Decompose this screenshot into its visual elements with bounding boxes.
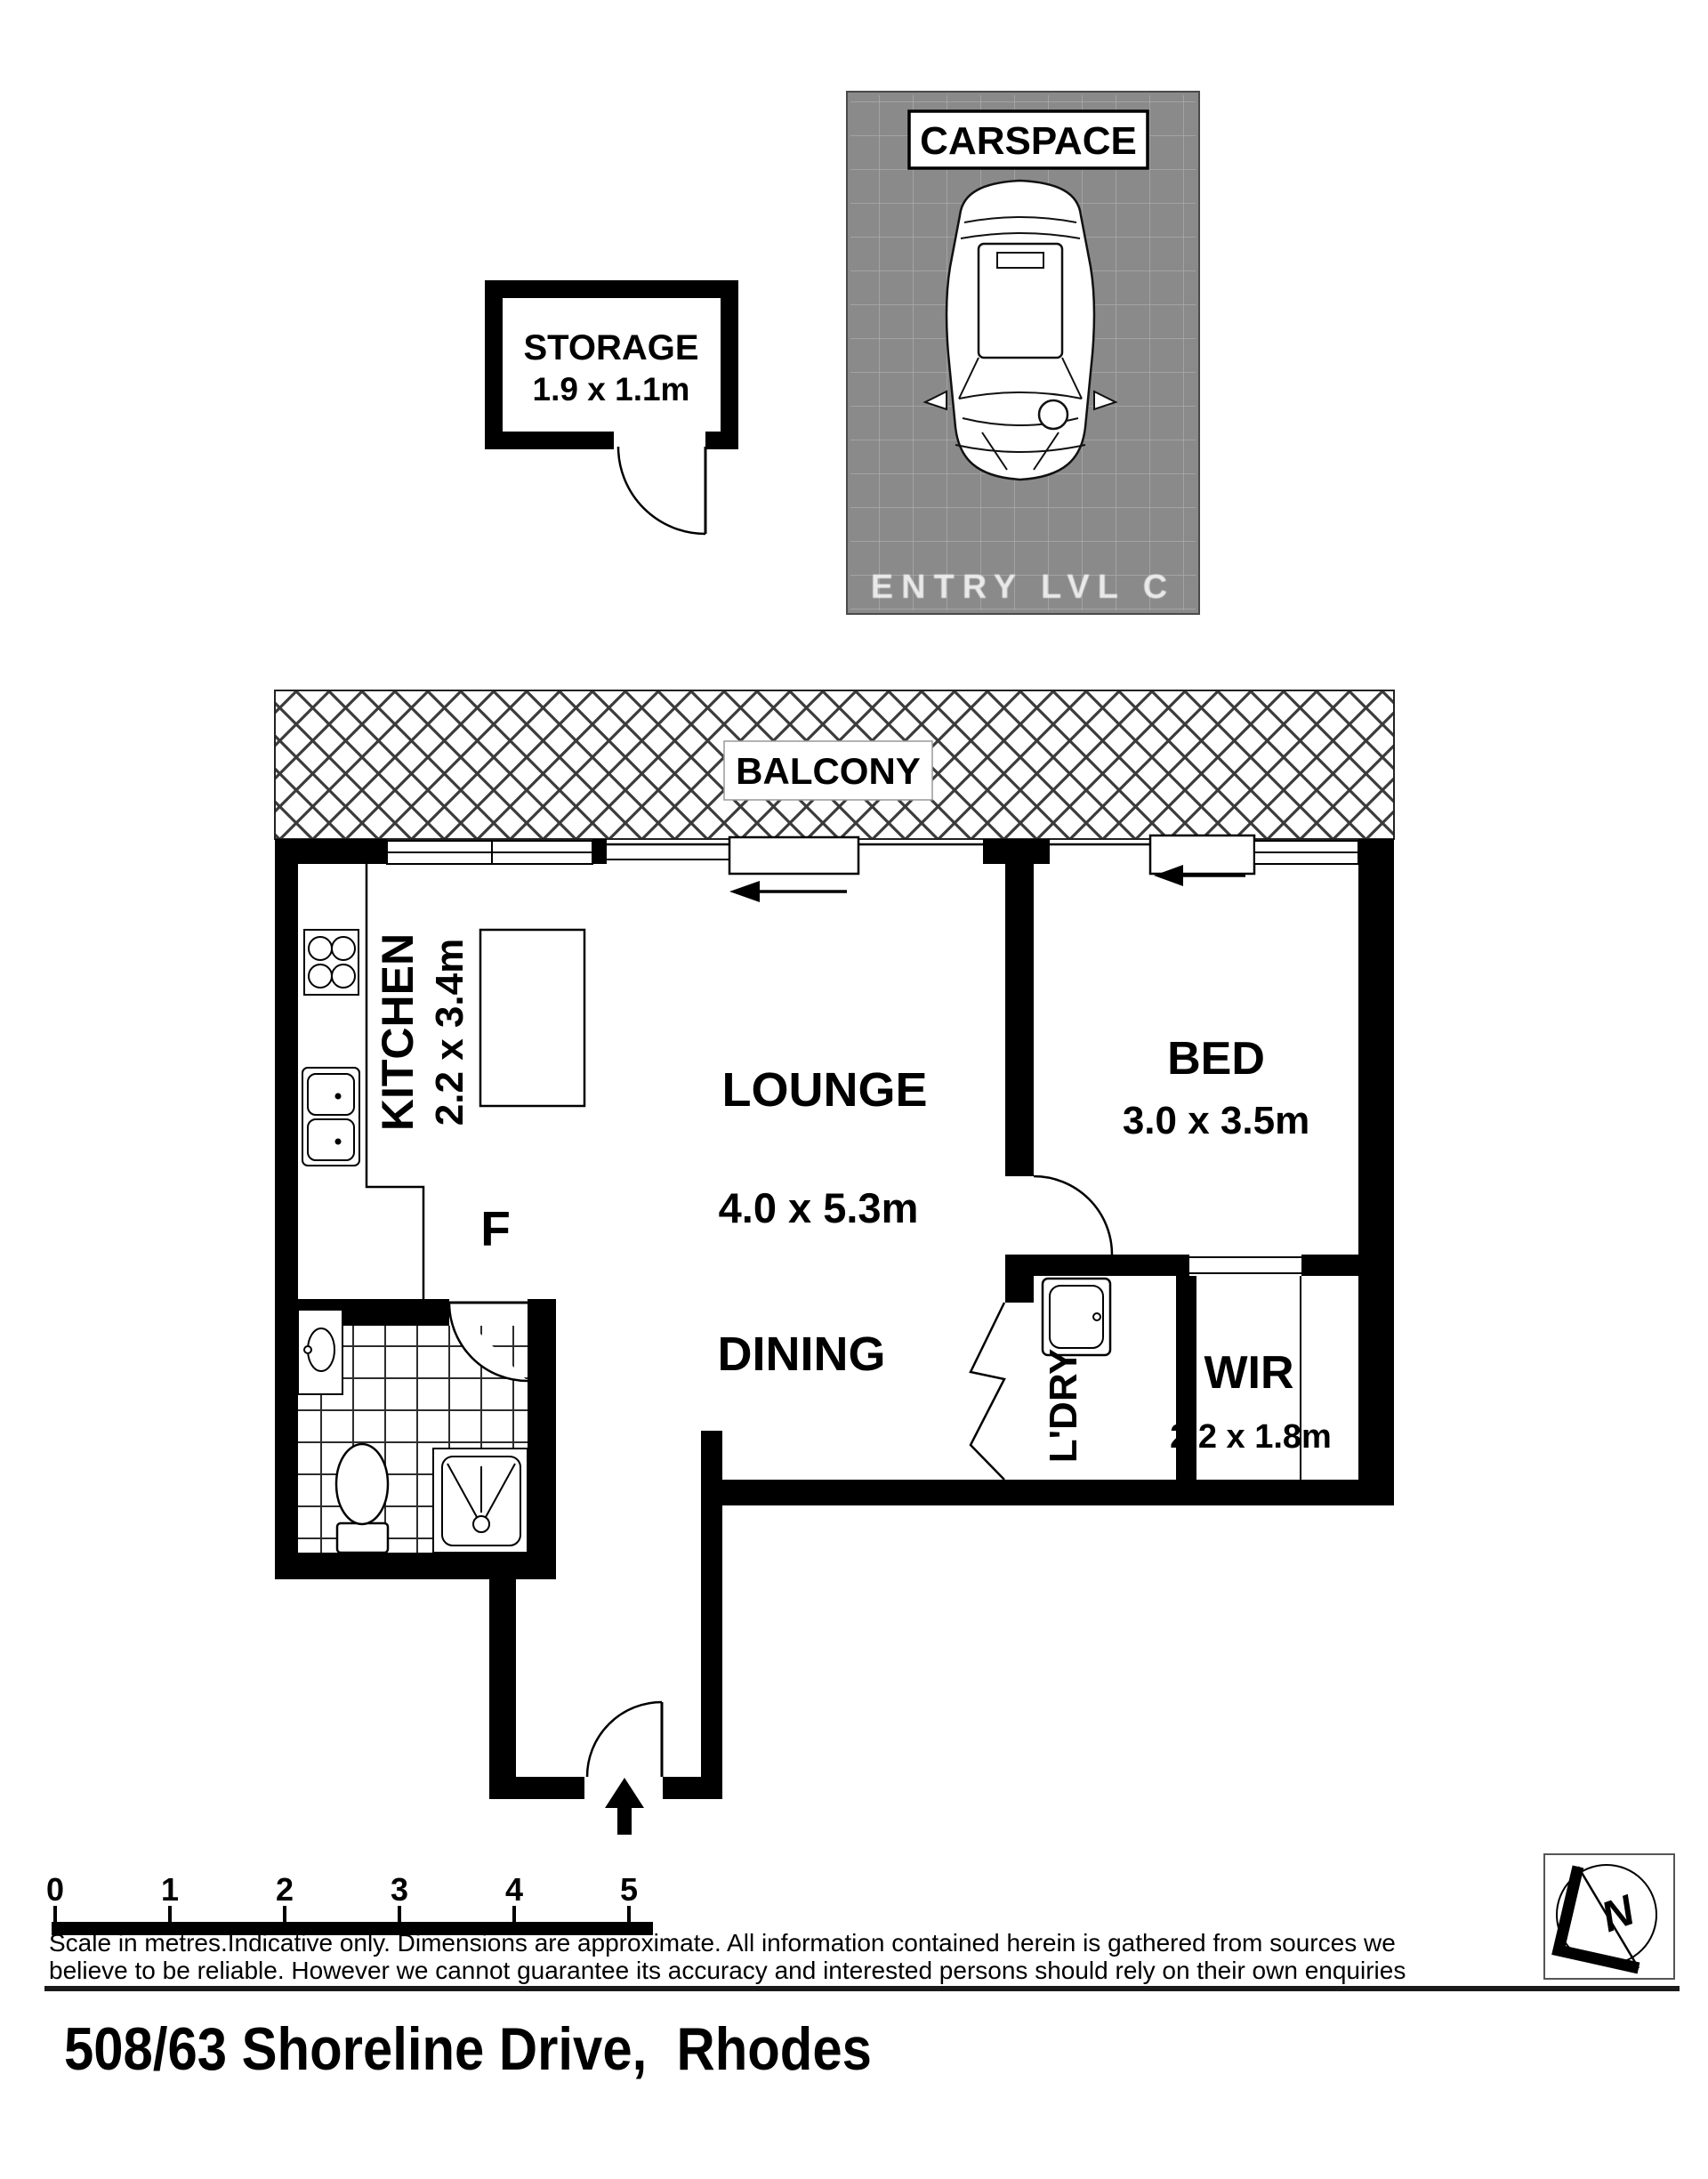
- wir-label: WIR: [1204, 1347, 1293, 1399]
- scale-tick: [512, 1906, 516, 1924]
- wall-bath-right: [528, 1299, 556, 1553]
- kitchen-label: KITCHEN: [373, 933, 423, 1131]
- storage-dims: 1.9 x 1.1m: [533, 371, 690, 408]
- shower-drain: [473, 1516, 489, 1532]
- bed-door-arc: [1034, 1176, 1112, 1255]
- wall-segment: [983, 839, 1050, 864]
- cooktop-burner: [309, 937, 332, 960]
- toilet-icon: [336, 1444, 388, 1524]
- wall-segment: [1301, 1255, 1358, 1276]
- kitchen-island: [480, 930, 584, 1106]
- carspace-entry-text: ENTRY LVL C: [871, 569, 1176, 606]
- scale-tick-label: 0: [46, 1871, 64, 1908]
- cooktop-burner: [309, 964, 332, 988]
- wall-right: [1358, 839, 1394, 1505]
- wall-bath-bottom: [275, 1553, 556, 1579]
- wall-segment: [592, 839, 607, 864]
- carspace-label: CARSPACE: [920, 119, 1137, 163]
- entry-block: [587, 1702, 662, 1835]
- kitchen-dims: 2.2 x 3.4m: [428, 939, 471, 1126]
- wall-segment: [1005, 1276, 1034, 1303]
- address-title: 508/63 Shoreline Drive, Rhodes: [64, 2014, 872, 2082]
- wall-left: [275, 839, 298, 1579]
- entry-door-arc: [587, 1702, 662, 1777]
- storage-label: STORAGE: [523, 328, 698, 367]
- entry-arrow-icon: [605, 1778, 644, 1835]
- scale-tick: [398, 1906, 401, 1924]
- lounge-dims: 4.0 x 5.3m: [719, 1184, 919, 1231]
- wall-segment: [721, 280, 738, 449]
- lounge-label: LOUNGE: [721, 1063, 927, 1117]
- fridge-label: F: [480, 1201, 511, 1256]
- cooktop-burner: [332, 964, 355, 988]
- wall-hall-left: [489, 1579, 516, 1799]
- bifold-door-icon: [971, 1303, 1004, 1480]
- balcony-label: BALCONY: [736, 750, 921, 792]
- balcony-block: BALCONY: [275, 690, 1394, 839]
- floorplan-svg: CARSPACE ENTRY LVL C STORAGE 1.9 x: [0, 0, 1708, 2179]
- wir-dims: 2.2 x 1.8m: [1170, 1418, 1332, 1456]
- left-arrow-icon: [729, 881, 760, 902]
- carspace-block: CARSPACE ENTRY LVL C: [847, 92, 1199, 614]
- bed-label: BED: [1167, 1033, 1265, 1085]
- wall-segment: [705, 432, 738, 449]
- disclaimer-line2: believe to be reliable. However we canno…: [49, 1957, 1406, 1984]
- scale-tick-label: 1: [161, 1871, 179, 1908]
- floorplan-page: CARSPACE ENTRY LVL C STORAGE 1.9 x: [0, 0, 1708, 2179]
- agency-logo: N: [1544, 1854, 1674, 1979]
- wall-hall-right: [701, 1431, 722, 1799]
- scale-tick-label: 5: [620, 1871, 638, 1908]
- toilet-tank: [337, 1523, 388, 1553]
- laundry-block: L'DRY: [971, 1279, 1110, 1480]
- sink-tap-dot: [335, 1094, 342, 1100]
- bathroom-block: [298, 1303, 528, 1553]
- divider-rule: [44, 1986, 1680, 1991]
- wall-segment: [485, 280, 503, 449]
- sink-basin: [308, 1074, 354, 1115]
- sink-basin: [308, 1119, 354, 1160]
- scale-tick: [53, 1906, 57, 1924]
- laundry-tub-tap: [1093, 1313, 1100, 1320]
- wall-lounge-bed: [1005, 864, 1034, 1176]
- sink-tap-dot: [335, 1139, 342, 1145]
- storage-door-arc: [618, 447, 705, 534]
- storage-block: STORAGE 1.9 x 1.1m: [485, 280, 738, 534]
- wall-segment: [485, 432, 614, 449]
- scale-tick-label: 3: [391, 1871, 408, 1908]
- slider-panel-lounge: [729, 837, 858, 874]
- basin-tap: [304, 1346, 311, 1353]
- car-steering-wheel: [1039, 400, 1067, 429]
- scale-bar: 0 1 2 3 4 5: [46, 1871, 653, 1935]
- scale-tick: [168, 1906, 172, 1924]
- laundry-label: L'DRY: [1042, 1349, 1085, 1464]
- car-sunroof: [997, 253, 1043, 268]
- wall-bottom: [701, 1480, 1394, 1505]
- wall-segment: [485, 280, 738, 298]
- scale-tick: [283, 1906, 286, 1924]
- scale-tick-label: 2: [276, 1871, 294, 1908]
- dining-label: DINING: [718, 1328, 886, 1381]
- cooktop-burner: [332, 937, 355, 960]
- slider-panel-bed: [1150, 835, 1254, 874]
- bed-dims: 3.0 x 3.5m: [1123, 1099, 1309, 1142]
- openings: [387, 835, 1358, 902]
- wall-segment: [663, 1777, 722, 1799]
- disclaimer-line1: Scale in metres.Indicative only. Dimensi…: [49, 1929, 1396, 1957]
- wall-segment: [1005, 1255, 1189, 1276]
- scale-tick: [627, 1906, 631, 1924]
- scale-tick-label: 4: [505, 1871, 523, 1908]
